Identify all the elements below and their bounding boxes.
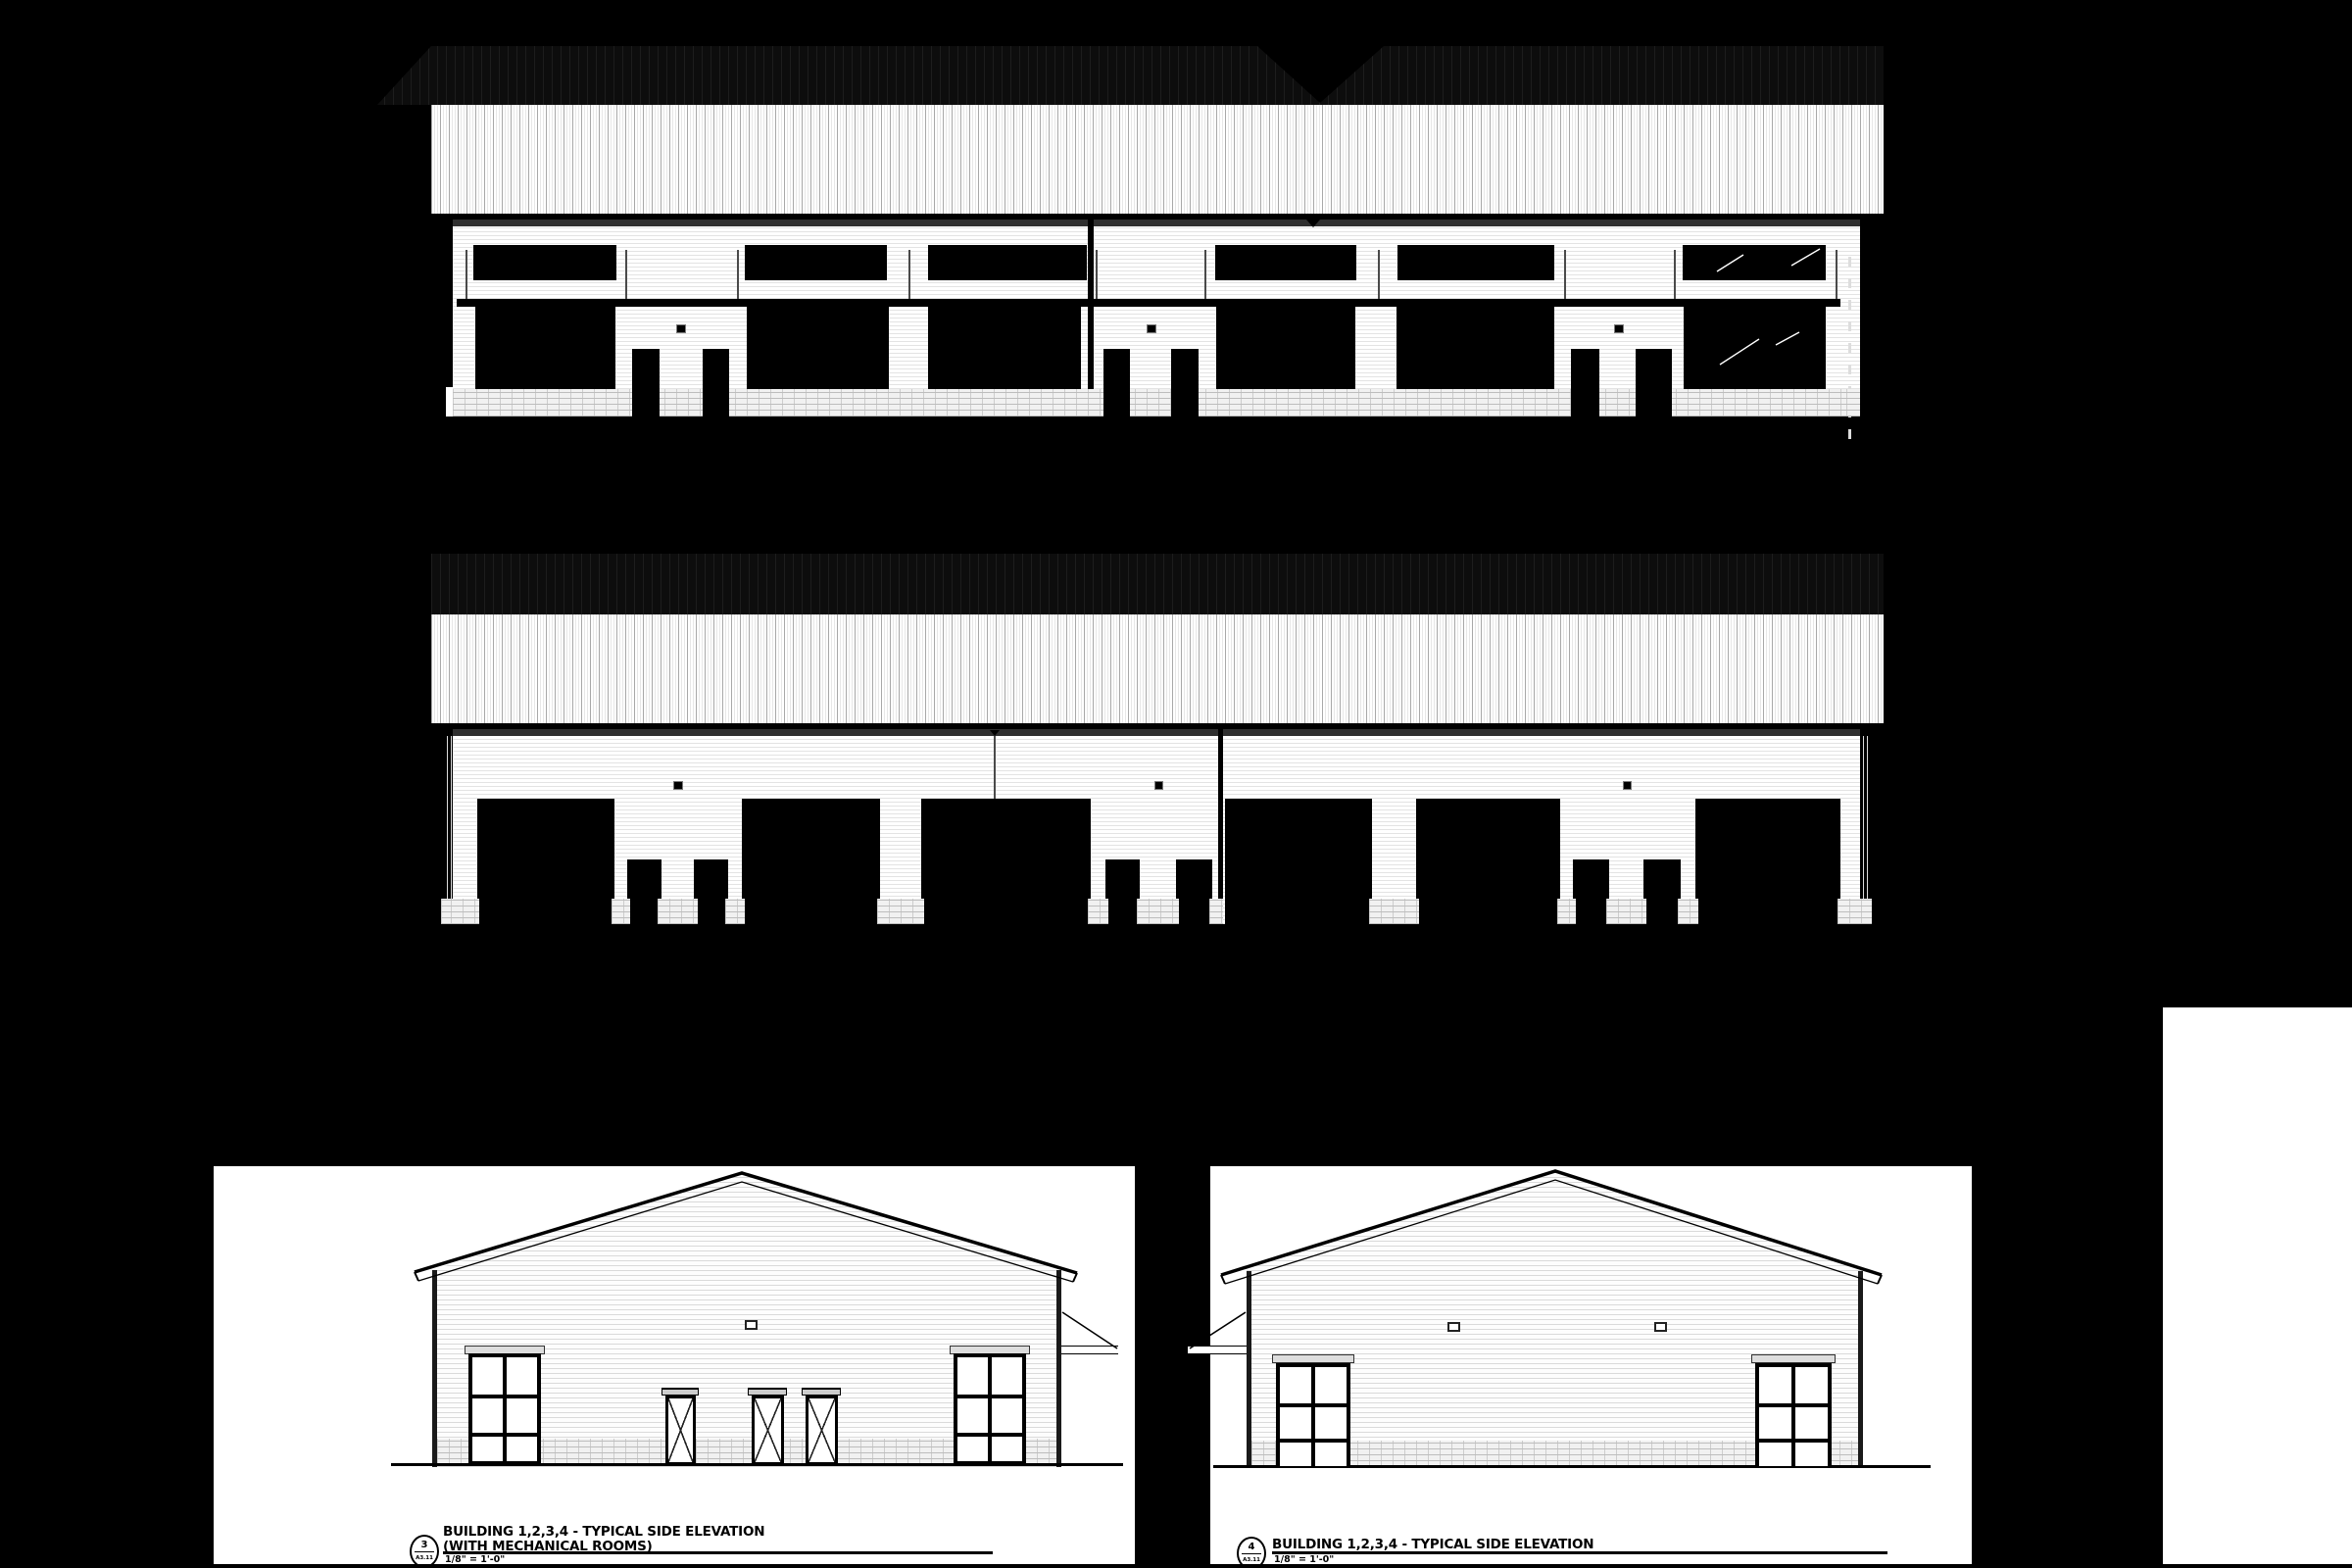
drawing3-title-underline — [443, 1551, 993, 1554]
sheet-bottom-border — [0, 1564, 2352, 1568]
sheet-number: A3.11 — [416, 1556, 433, 1562]
architectural-sheet: 3 A3.11 BUILDING 1,2,3,4 - TYPICAL SIDE … — [0, 0, 2352, 1568]
drawing-number: 4 — [1242, 1543, 1262, 1554]
drawing3-title-line1: BUILDING 1,2,3,4 - TYPICAL SIDE ELEVATIO… — [443, 1524, 764, 1540]
linework-overlay — [0, 0, 2352, 1568]
drawing-tag-3: 3 A3.11 — [410, 1535, 439, 1568]
drawing4-title-line1: BUILDING 1,2,3,4 - TYPICAL SIDE ELEVATIO… — [1272, 1537, 1593, 1552]
sheet-number: A3.11 — [1243, 1558, 1260, 1564]
drawing4-title-underline — [1272, 1551, 1887, 1554]
drawing-number: 3 — [415, 1541, 435, 1552]
